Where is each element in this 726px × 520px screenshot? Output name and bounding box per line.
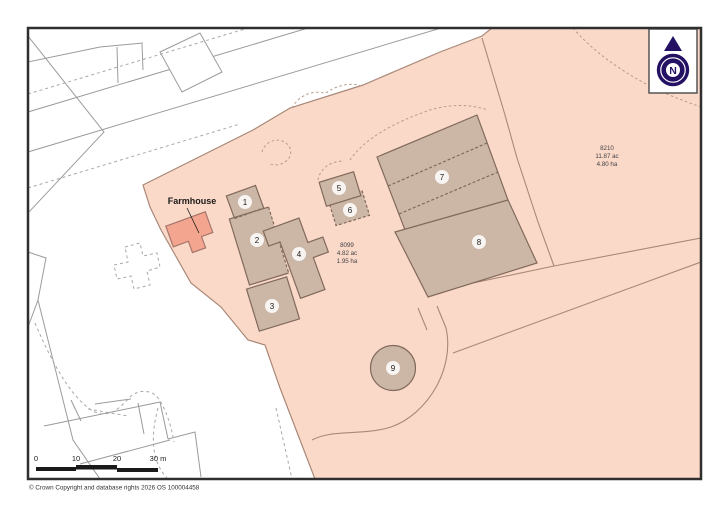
- north-arrow: N: [649, 29, 697, 93]
- scale-tick-30m: 30 m: [150, 454, 167, 463]
- scale-bar-segment: [76, 465, 117, 470]
- scale-tick-10: 10: [72, 454, 80, 463]
- parcel-number: 8210: [600, 145, 614, 152]
- parcel-hectares: 1.95 ha: [337, 258, 358, 265]
- parcel-number: 8099: [340, 242, 354, 249]
- copyright-text: © Crown Copyright and database rights 20…: [29, 484, 200, 492]
- scale-tick-0: 0: [34, 454, 38, 463]
- parcel-hectares: 4.80 ha: [597, 161, 618, 168]
- building-number-8: 8: [477, 238, 482, 247]
- building-number-3: 3: [270, 302, 275, 311]
- building-number-6: 6: [348, 206, 353, 215]
- building-number-2: 2: [255, 236, 260, 245]
- compass-north-letter: N: [669, 65, 677, 77]
- building-number-7: 7: [440, 173, 445, 182]
- building-number-5: 5: [337, 184, 342, 193]
- site-plan-map: Farmhouse: [0, 0, 726, 520]
- site-plan-page: Farmhouse: [0, 0, 726, 520]
- building-number-1: 1: [243, 198, 248, 207]
- scale-tick-20: 20: [113, 454, 121, 463]
- farmhouse-label: Farmhouse: [168, 196, 217, 206]
- parcel-acres: 11.87 ac: [595, 153, 618, 160]
- building-number-4: 4: [297, 250, 302, 259]
- building-number-9: 9: [391, 364, 396, 373]
- scale-bar-segment: [117, 468, 158, 472]
- parcel-acres: 4.82 ac: [337, 250, 357, 257]
- scale-bar-segment: [36, 467, 76, 471]
